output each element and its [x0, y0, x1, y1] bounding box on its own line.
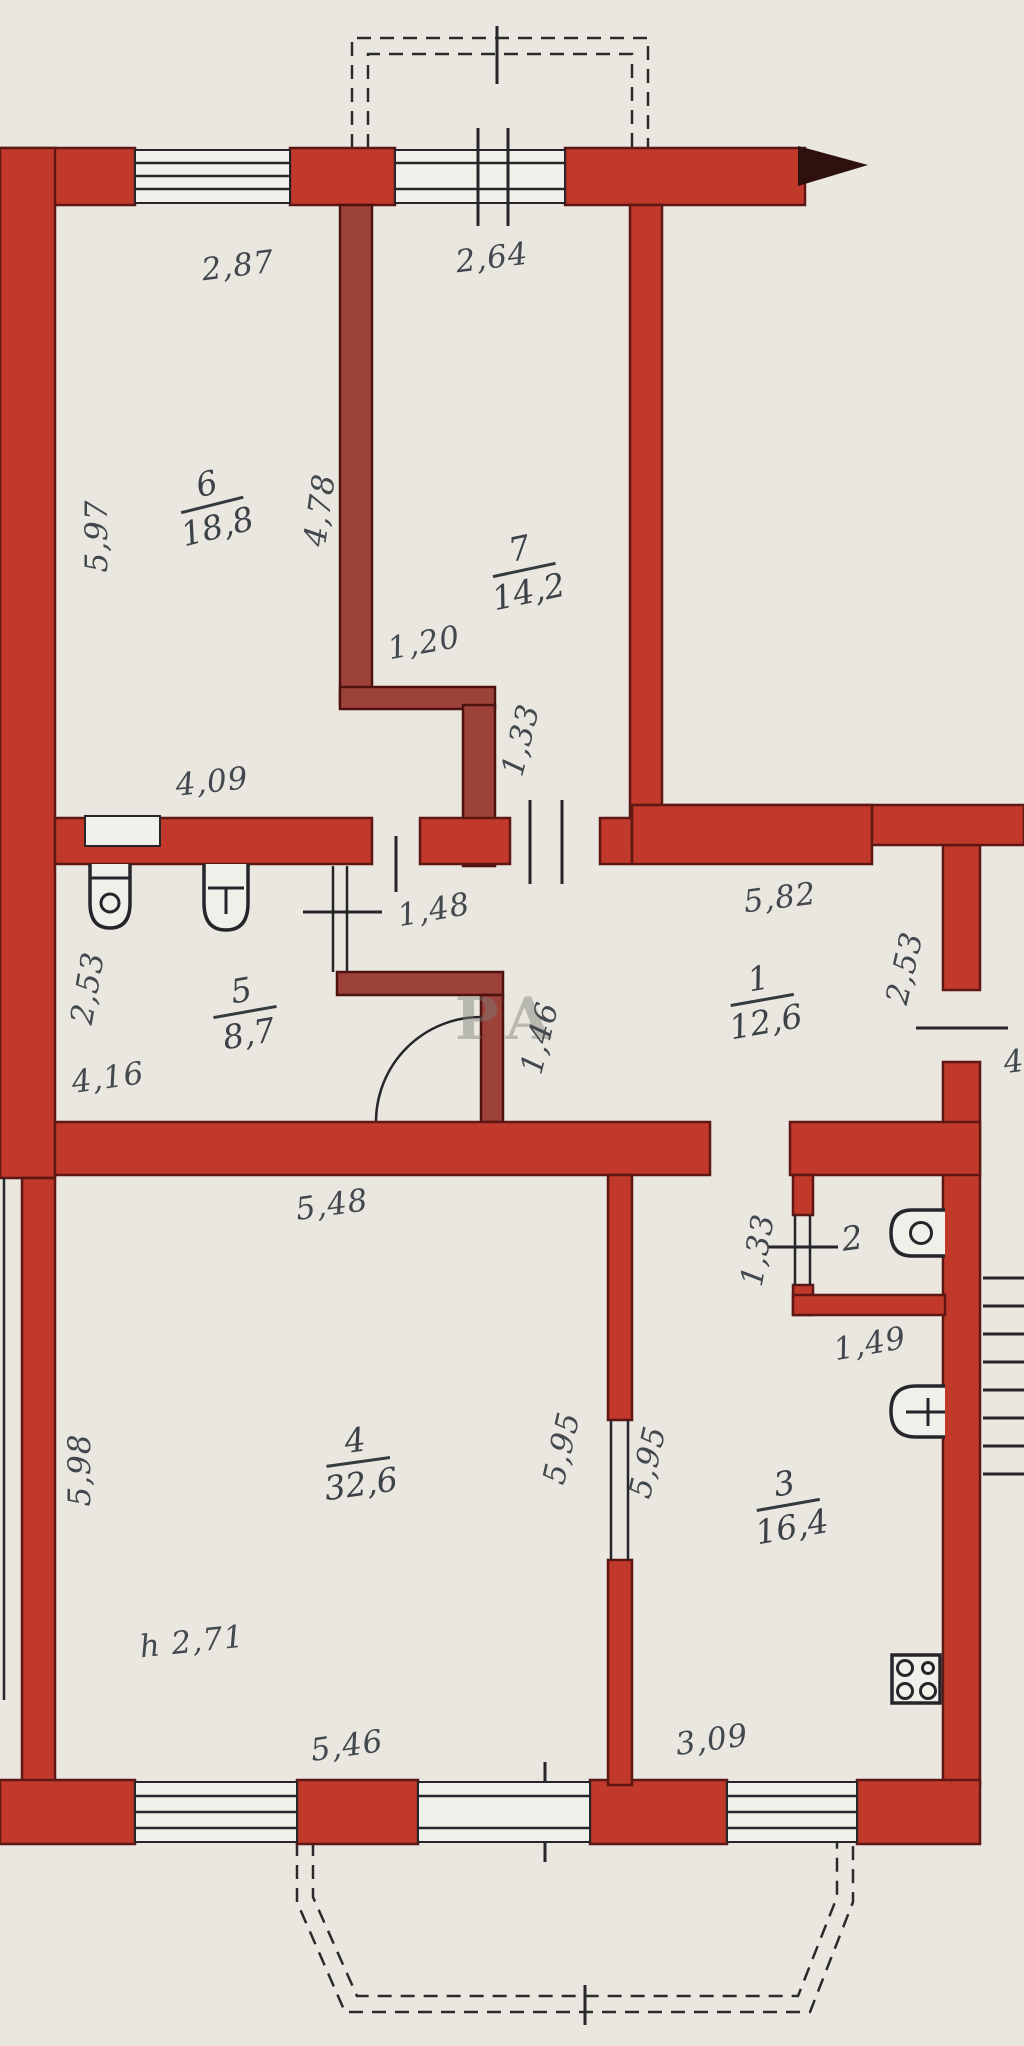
room-1-label: 1 12,6	[719, 956, 805, 1045]
window-room7	[395, 128, 565, 226]
wall-right-of-7	[630, 205, 662, 818]
wall-between-6-7	[340, 205, 495, 866]
room-5-area: 8,7	[220, 1013, 277, 1055]
room-4-label: 4 32,6	[316, 1419, 399, 1505]
dim-landing: 4	[1001, 1043, 1024, 1082]
toilet-icon	[891, 1210, 945, 1256]
room-5-number: 5	[228, 972, 254, 1008]
window-room6	[135, 150, 290, 203]
room-4-area: 32,6	[322, 1462, 399, 1505]
room-6-number: 6	[192, 465, 220, 502]
dim-left-upper: 5,97	[79, 499, 115, 572]
top-balcony	[352, 26, 648, 148]
room-2-label: 2	[839, 1220, 864, 1256]
room3-washbasin-icon	[891, 1386, 945, 1437]
room-3-label: 3 16,4	[745, 1461, 831, 1550]
stove-burners-icon	[892, 1655, 940, 1703]
room-7-number: 7	[506, 530, 533, 567]
basin-with-drain-icon	[90, 864, 130, 928]
washbasin-tap-icon	[204, 864, 248, 930]
dim-room4-left: 5,98	[62, 1433, 98, 1506]
room5-partition-doorway	[303, 866, 382, 972]
left-wall	[0, 148, 55, 1785]
middle-wall	[55, 1122, 980, 1175]
room-1-number: 1	[745, 960, 771, 996]
floor-plan: РА 2,87 2,64 5,97 4,78 1,20 1,33 4,09 1,…	[0, 0, 1024, 2046]
room-3-number: 3	[771, 1465, 797, 1501]
room-7-label: 7 14,2	[480, 525, 568, 616]
room-4-number: 4	[342, 1422, 367, 1458]
dim-room6-bottom: 4,09	[174, 760, 250, 803]
room-5-label: 5 8,7	[207, 969, 283, 1056]
entrance-arrow-icon	[798, 146, 868, 186]
window-room4-balcony	[418, 1782, 590, 1842]
stairs-icon	[983, 1278, 1024, 1474]
window-room3	[727, 1782, 857, 1842]
room-2-number: 2	[839, 1220, 864, 1256]
wall-under-room6	[55, 800, 632, 892]
bottom-balcony	[297, 1842, 853, 2025]
window-room4-left	[135, 1782, 297, 1842]
